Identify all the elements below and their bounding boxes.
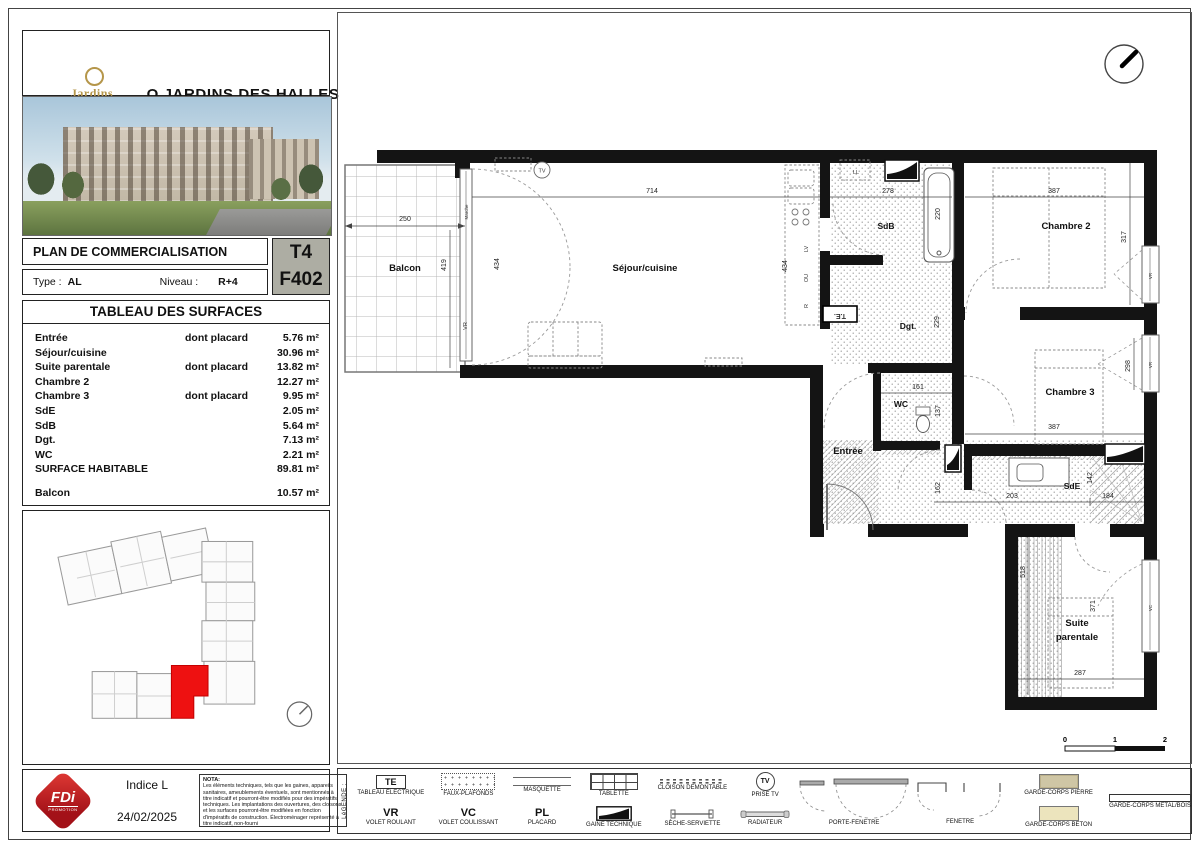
dim-203: 203 <box>1006 493 1018 500</box>
garde-corps-beton-swatch <box>1039 806 1079 821</box>
kitchen-burners <box>792 209 809 225</box>
row-value: 9.95 m² <box>263 389 319 404</box>
row-value: 12.27 m² <box>263 375 319 390</box>
legend-caption: TABLEAU ÉLECTRIQUE <box>357 790 424 796</box>
surface-row: Entréedont placard5.76 m² <box>35 331 319 346</box>
gaine-technique-icon <box>596 806 632 821</box>
row-value: 13.82 m² <box>263 360 319 375</box>
legend-item-gaine-technique: GAINE TECHNIQUE <box>577 801 651 833</box>
row-note <box>185 404 263 419</box>
surfaces-title: TABLEAU DES SURFACES <box>23 301 329 324</box>
fdi-text: FDi <box>51 791 75 805</box>
row-name: Dgt. <box>35 433 185 448</box>
legend-item-seche-serviette: SÈCHE-SERVIETTE <box>651 801 734 833</box>
porte-fenetre-icon <box>796 777 912 819</box>
logo-box: Jardins des Halles O JARDINS DES HALLES <box>22 30 330 96</box>
faux-plafonds-icon <box>441 773 495 790</box>
building-photo <box>22 96 332 236</box>
dim-387-ch2: 387 <box>1048 188 1060 195</box>
room-label-suite-1: Suite <box>1065 618 1088 629</box>
photo-road <box>206 209 332 235</box>
tv-label: TV <box>538 169 545 175</box>
row-note <box>185 375 263 390</box>
legend-item-placard: PL PLACARD <box>507 801 577 833</box>
row-value: 30.96 m² <box>263 346 319 361</box>
legend-caption: TABLETTE <box>599 791 629 797</box>
dim-287: 287 <box>1074 670 1086 677</box>
row-name: WC <box>35 448 185 463</box>
sitemap-wing-right <box>202 541 255 704</box>
row-note <box>185 346 263 361</box>
sitemap-wing-bottom <box>92 672 171 719</box>
indice-label: Indice L <box>101 778 193 792</box>
legend-item-volet-roulant: VR VOLET ROULANT <box>352 801 430 833</box>
row-note <box>185 448 263 463</box>
legend-caption: GARDE-CORPS METAL/BOIS <box>1109 803 1191 809</box>
scale-1: 1 <box>1113 735 1117 744</box>
tablette-icon <box>590 773 638 790</box>
legend-item-garde-corps-beton: GARDE-CORPS BETON <box>1008 801 1109 833</box>
tag-ll: LL <box>853 170 859 176</box>
row-name: Entrée <box>35 331 185 346</box>
dim-278: 278 <box>882 188 894 195</box>
type-label: Type : <box>33 276 62 288</box>
room-label-chambre3: Chambre 3 <box>1045 387 1094 398</box>
dim-229: 229 <box>934 316 941 328</box>
surface-row: Chambre 3dont placard9.95 m² <box>35 389 319 404</box>
dim-250: 250 <box>399 216 411 223</box>
dim-184: 184 <box>1102 493 1114 500</box>
sitemap-compass-icon <box>287 702 311 726</box>
row-note <box>185 419 263 434</box>
room-label-sdb: SdB <box>878 221 895 231</box>
row-name: Balcon <box>35 486 185 501</box>
row-name: Séjour/cuisine <box>35 346 185 361</box>
tag-r: R <box>804 304 810 308</box>
surface-row: SdE2.05 m² <box>35 404 319 419</box>
legend-item-garde-corps-metal: GARDE-CORPS METAL/BOIS <box>1109 769 1191 833</box>
legend-item-tableau-electrique: TE TABLEAU ÉLECTRIQUE <box>352 769 430 801</box>
legend-caption: PORTE-FENETRE <box>829 820 880 826</box>
legend-caption: FAUX-PLAFONDS <box>443 791 493 797</box>
room-label-entree: Entrée <box>833 446 863 457</box>
garde-corps-metal-swatch <box>1109 794 1191 802</box>
dim-142: 142 <box>1087 472 1094 484</box>
masquette-icon <box>513 777 571 786</box>
legend-caption: FENETRE <box>946 819 974 825</box>
nota-text: Les éléments techniques, tels que les ga… <box>203 783 341 827</box>
highlighted-unit <box>171 665 208 718</box>
tag-marche: Marche <box>464 204 469 220</box>
row-note <box>185 462 263 477</box>
room-labels: Balcon Séjour/cuisine SdB Dgt. WC Entrée… <box>389 221 1098 643</box>
photo-trees <box>23 149 331 209</box>
room-label-suite-2: parentale <box>1056 632 1098 643</box>
dim-220: 220 <box>935 208 942 220</box>
compass-icon <box>1103 43 1145 85</box>
dim-371: 371 <box>1090 600 1097 612</box>
tag-vr-ch3: VR <box>1148 361 1153 368</box>
dim-317: 317 <box>1121 231 1128 243</box>
plan-title: PLAN DE COMMERCIALISATION <box>33 245 227 259</box>
legend-caption: PRISE TV <box>752 792 779 798</box>
row-value: 10.57 m² <box>263 486 319 501</box>
surface-row: SdB5.64 m² <box>35 419 319 434</box>
tag-lv: LV <box>804 246 810 253</box>
row-name: SdB <box>35 419 185 434</box>
footer-panel: FDi PROMOTION Indice L 24/02/2025 NOTA: … <box>22 769 330 832</box>
dim-434a: 434 <box>494 258 501 270</box>
legend-item-porte-fenetre: PORTE-FENETRE <box>796 769 912 833</box>
fenetre-icon <box>912 778 1008 818</box>
legend-caption: VOLET ROULANT <box>366 820 416 826</box>
legend-caption: VOLET COULISSANT <box>439 820 499 826</box>
sitemap-wing-topleft <box>57 522 215 605</box>
room-label-balcon: Balcon <box>389 263 421 274</box>
type-row: Type : AL Niveau : R+4 <box>22 269 268 295</box>
prise-tv-icon: TV <box>756 772 775 791</box>
legend-item-masquette: MASQUETTE <box>507 769 577 801</box>
dim-161: 161 <box>912 384 924 391</box>
legend-caption: CLOISON DEMONTABLE <box>658 785 728 791</box>
surface-row: Suite parentaledont placard13.82 m² <box>35 360 319 375</box>
row-note: dont placard <box>185 360 263 375</box>
unit-number: F402 <box>279 269 322 291</box>
te-symbol: TE <box>376 775 406 789</box>
legend-panel: LéGENDE : TE TABLEAU ÉLECTRIQUE VR VOLET… <box>337 768 1192 834</box>
row-note: dont placard <box>185 331 263 346</box>
row-name: SURFACE HABITABLE <box>35 462 185 477</box>
dim-518: 518 <box>1020 566 1027 578</box>
dim-387-ch3: 387 <box>1048 424 1060 431</box>
surface-row-balcony: Balcon10.57 m² <box>35 486 319 501</box>
scale-0: 0 <box>1063 735 1067 744</box>
dim-298: 298 <box>1125 360 1132 372</box>
unit-badge: T4 F402 <box>272 238 330 295</box>
legend-item-faux-plafonds: FAUX-PLAFONDS <box>430 769 508 801</box>
garde-corps-pierre-swatch <box>1039 774 1079 789</box>
legend-title-wrap: LéGENDE : <box>338 769 352 833</box>
sitemap-panel <box>22 510 330 765</box>
legend-item-fenetre: FENETRE <box>912 769 1008 833</box>
legend-caption: GARDE-CORPS BETON <box>1025 822 1092 828</box>
row-note: dont placard <box>185 389 263 404</box>
dim-714: 714 <box>646 188 658 195</box>
niveau-value: R+4 <box>218 276 238 288</box>
indice-block: Indice L 24/02/2025 <box>101 778 193 824</box>
surface-row: Chambre 212.27 m² <box>35 375 319 390</box>
legend-caption: GARDE-CORPS PIERRE <box>1024 790 1093 796</box>
fdi-logo: FDi PROMOTION <box>32 770 94 832</box>
room-label-dgt: Dgt. <box>900 321 917 331</box>
row-note <box>185 433 263 448</box>
tv-socket-icon: TV <box>534 162 550 178</box>
radiateur-icon <box>739 809 791 819</box>
row-value: 2.05 m² <box>263 404 319 419</box>
legend-item-prise-tv: TV PRISE TV <box>734 769 796 801</box>
row-name: Chambre 2 <box>35 375 185 390</box>
legend-item-cloison-demontable: CLOISON DEMONTABLE <box>651 769 734 801</box>
fdi-subtext: PROMOTION <box>48 806 77 812</box>
legend-item-garde-corps-pierre: GARDE-CORPS PIERRE <box>1008 769 1109 801</box>
row-value: 7.13 m² <box>263 433 319 448</box>
legend-caption: SÈCHE-SERVIETTE <box>664 821 720 827</box>
legend-title: LéGENDE : <box>342 783 348 819</box>
sitemap <box>23 511 328 762</box>
tag-te: T.E. <box>834 312 846 319</box>
surfaces-panel: TABLEAU DES SURFACES Entréedont placard5… <box>22 300 330 506</box>
vc-symbol: VC <box>461 808 476 819</box>
floor-plan: 0 1 2 TV Balcon Séjour/cuisine SdB Dgt. … <box>336 116 1191 762</box>
surfaces-rows: Entréedont placard5.76 m² Séjour/cuisine… <box>23 324 329 501</box>
row-value: 5.64 m² <box>263 419 319 434</box>
legend-item-tablette: TABLETTE <box>577 769 651 801</box>
nota-box: NOTA: Les éléments techniques, tels que … <box>199 774 347 827</box>
surface-row-total: SURFACE HABITABLE89.81 m² <box>35 462 319 477</box>
row-name: Suite parentale <box>35 360 185 375</box>
row-value: 5.76 m² <box>263 331 319 346</box>
pl-symbol: PL <box>535 808 549 819</box>
legend-caption: MASQUETTE <box>523 787 560 793</box>
tag-ou: OU <box>804 274 810 282</box>
type-value: AL <box>68 276 82 288</box>
legend-item-volet-coulissant: VC VOLET COULISSANT <box>430 801 508 833</box>
brand-ring-icon <box>85 67 104 86</box>
tag-vc-suite: VC <box>1148 604 1153 611</box>
dim-137: 137 <box>935 405 942 417</box>
scale-2: 2 <box>1163 735 1167 744</box>
row-name: SdE <box>35 404 185 419</box>
dim-434b: 434 <box>782 260 789 272</box>
room-label-sejour: Séjour/cuisine <box>613 263 678 274</box>
legend-caption: RADIATEUR <box>748 820 782 826</box>
legend-caption: PLACARD <box>528 820 556 826</box>
legend-caption: GAINE TECHNIQUE <box>586 822 642 828</box>
tag-vr-window: VR <box>463 322 469 330</box>
row-note <box>185 486 263 501</box>
dim-162: 162 <box>935 482 942 494</box>
cloison-icon <box>660 779 724 784</box>
room-label-wc: WC <box>894 399 908 409</box>
row-name: Chambre 3 <box>35 389 185 404</box>
seche-serviette-icon <box>668 808 716 820</box>
surface-row: WC2.21 m² <box>35 448 319 463</box>
scale-bar: 0 1 2 <box>1063 735 1167 751</box>
row-value: 89.81 m² <box>263 462 319 477</box>
room-label-sde: SdE <box>1064 481 1081 491</box>
unit-type: T4 <box>290 242 312 264</box>
legend-item-radiateur: RADIATEUR <box>734 801 796 833</box>
surface-row: Dgt.7.13 m² <box>35 433 319 448</box>
tag-vr-ch2: VR <box>1148 272 1153 279</box>
niveau-label: Niveau : <box>160 276 199 288</box>
row-value: 2.21 m² <box>263 448 319 463</box>
room-label-chambre2: Chambre 2 <box>1041 221 1090 232</box>
surface-row: Séjour/cuisine30.96 m² <box>35 346 319 361</box>
plan-title-box: PLAN DE COMMERCIALISATION <box>22 238 268 265</box>
date-label: 24/02/2025 <box>101 810 193 824</box>
vr-symbol: VR <box>383 808 398 819</box>
dim-419: 419 <box>441 259 448 271</box>
